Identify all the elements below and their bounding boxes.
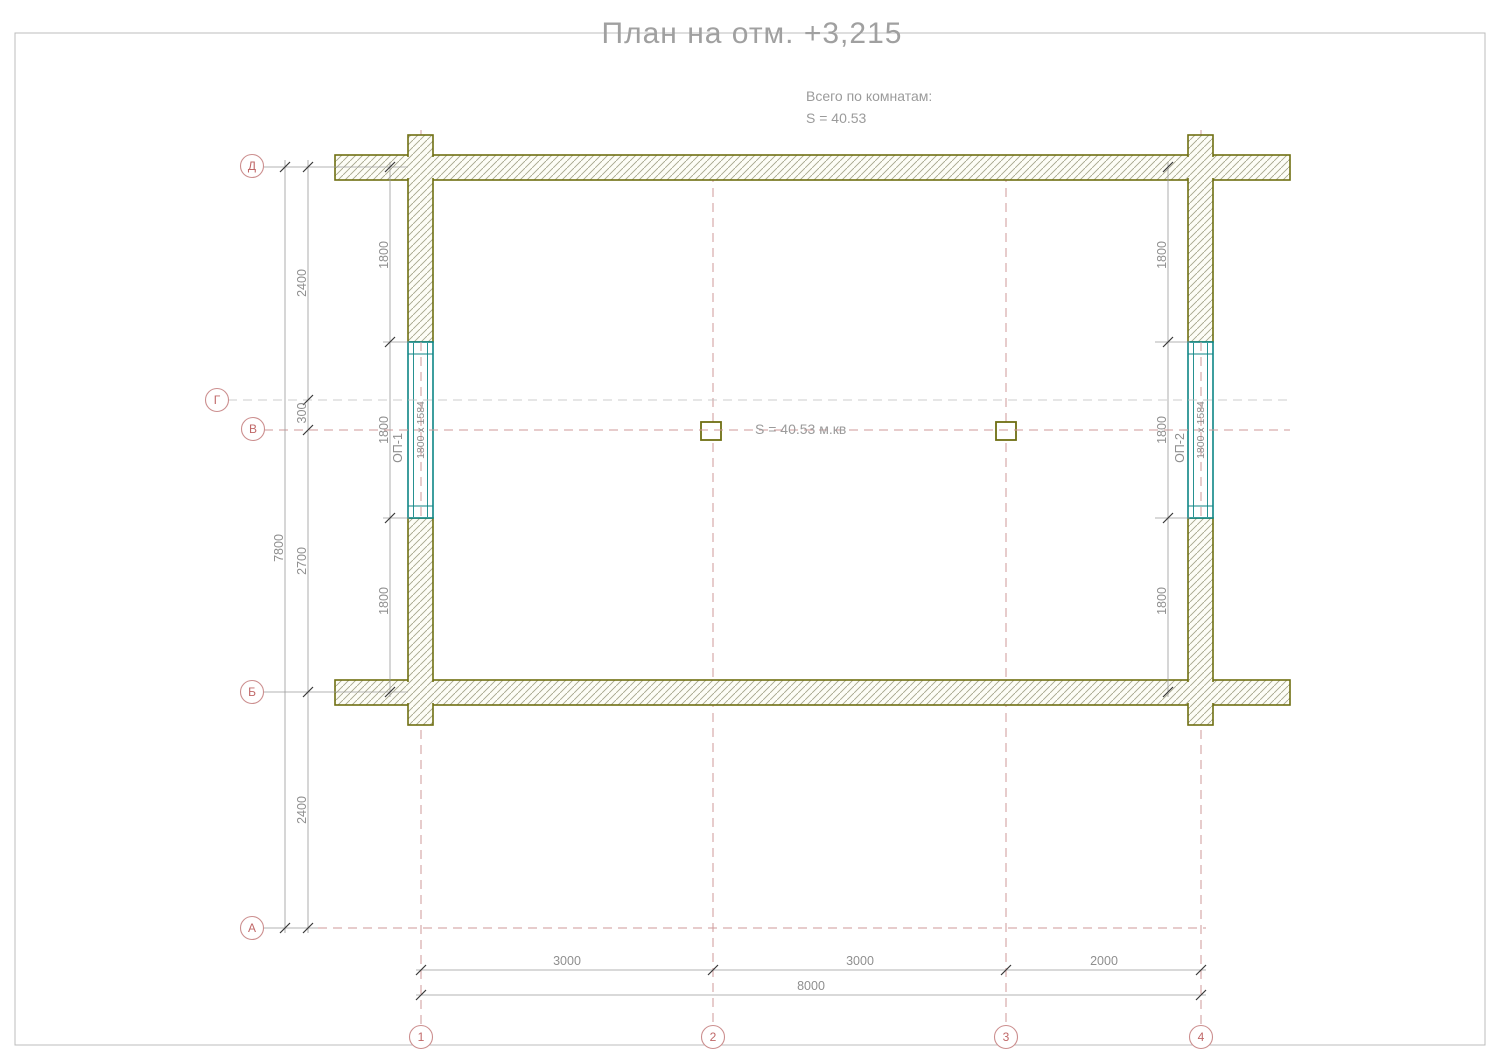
window-op1-size: 1800 х 1584 — [415, 401, 427, 459]
axis-label-4: 4 — [1198, 1030, 1205, 1044]
note-rooms-area: S = 40.53 — [806, 110, 867, 126]
dim-win-left-mid: 1800 — [377, 416, 391, 444]
dim-win-left-bot: 1800 — [377, 587, 391, 615]
drawing-title: План на отм. +3,215 — [602, 17, 903, 50]
dim-bottom-1: 3000 — [553, 954, 581, 968]
wall-top — [335, 155, 1290, 180]
dim-bottom-2: 3000 — [846, 954, 874, 968]
dim-win-left-top: 1800 — [377, 241, 391, 269]
axis-label-v: В — [249, 422, 257, 436]
window-op2-size: 1800 х 1584 — [1195, 401, 1207, 459]
drawing-sheet: Д Г В Б А 1 2 3 4 7800 2400 300 2700 240… — [0, 0, 1500, 1061]
axis-label-g: Г — [214, 393, 221, 407]
dim-win-right-mid: 1800 — [1155, 416, 1169, 444]
axis-label-3: 3 — [1003, 1030, 1010, 1044]
left-dimension-texts: 7800 2400 300 2700 2400 — [272, 269, 309, 824]
dim-left-bottom: 2400 — [295, 796, 309, 824]
dim-left-lower: 2700 — [295, 547, 309, 575]
wall-bottom — [335, 680, 1290, 705]
dim-left-mid: 300 — [295, 403, 309, 424]
axis-label-a: А — [248, 921, 256, 935]
dim-bottom-3: 2000 — [1090, 954, 1118, 968]
column-axis3 — [996, 422, 1016, 440]
dim-bottom-total: 8000 — [797, 979, 825, 993]
axis-label-b: Б — [248, 685, 256, 699]
window-op2-label: ОП-2 — [1173, 433, 1187, 463]
dimension-lines — [264, 160, 1206, 995]
sheet-border — [15, 33, 1485, 1045]
room-area-label: S = 40.53 м.кв — [755, 421, 846, 437]
centerlines-under — [318, 130, 1206, 1026]
dim-win-right-bot: 1800 — [1155, 587, 1169, 615]
axis-label-d: Д — [248, 159, 256, 173]
note-rooms-total: Всего по комнатам: — [806, 88, 932, 104]
window-op1-label: ОП-1 — [391, 433, 405, 463]
column-axis2 — [701, 422, 721, 440]
bottom-dimension-texts: 3000 3000 2000 8000 — [553, 954, 1118, 993]
axis-row-bubbles: Д Г В Б А — [206, 155, 265, 940]
axis-label-2: 2 — [710, 1030, 717, 1044]
axis-label-1: 1 — [418, 1030, 425, 1044]
dim-win-right-top: 1800 — [1155, 241, 1169, 269]
dim-left-total: 7800 — [272, 534, 286, 562]
dim-left-top: 2400 — [295, 269, 309, 297]
floor-plan-canvas: Д Г В Б А 1 2 3 4 7800 2400 300 2700 240… — [0, 0, 1500, 1061]
